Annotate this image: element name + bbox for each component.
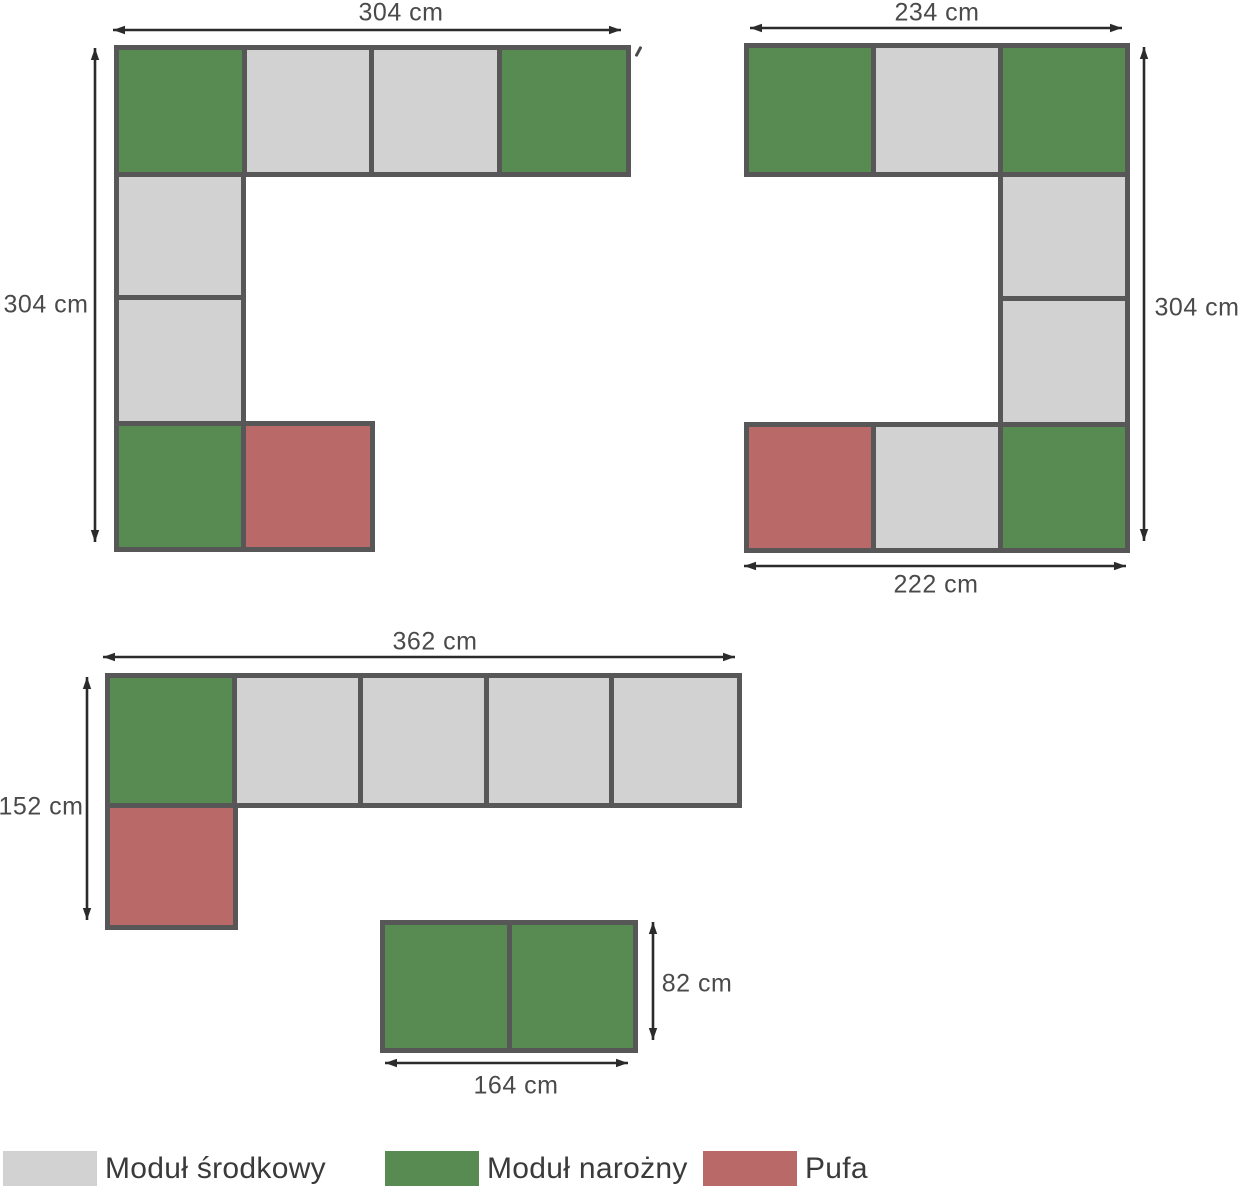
module-corner — [114, 45, 247, 177]
module-corner — [114, 421, 246, 552]
dimension-label-height: 82 cm — [662, 970, 733, 999]
dimension-arrow — [1140, 47, 1148, 541]
legend-item-center-module: Moduł środkowy — [3, 1150, 326, 1187]
module-corner — [998, 43, 1130, 177]
stray-mark — [635, 46, 643, 57]
dimension-label-height: 152 cm — [0, 793, 83, 822]
dimension-label-height: 304 cm — [4, 291, 89, 320]
module-corner — [998, 422, 1130, 553]
dimension-label-width: 362 cm — [393, 628, 478, 657]
dimension-arrow — [744, 562, 1126, 570]
dimension-arrow — [91, 48, 99, 542]
sofa-configuration-canvas: 304 cm304 cm234 cm304 cm222 cm362 cm152 … — [0, 0, 1241, 1200]
module-corner — [380, 920, 512, 1053]
module-corner — [744, 43, 876, 177]
dimension-label-top-width: 234 cm — [895, 0, 980, 28]
module-center — [871, 422, 1003, 553]
module-center — [232, 673, 363, 808]
module-corner — [507, 920, 638, 1053]
center-module-label: Moduł środkowy — [105, 1152, 326, 1186]
module-pufa — [105, 803, 238, 930]
dimension-label-width: 164 cm — [474, 1072, 559, 1101]
dimension-arrow — [385, 1059, 628, 1067]
pufa-label: Pufa — [805, 1152, 868, 1186]
module-corner — [105, 673, 237, 808]
module-center — [484, 673, 614, 808]
module-center — [242, 45, 374, 177]
module-center — [871, 43, 1003, 177]
module-center — [114, 295, 246, 426]
module-pufa — [744, 422, 876, 553]
dimension-label-bottom-width: 222 cm — [894, 571, 979, 600]
center-module-swatch — [3, 1151, 97, 1186]
module-center — [998, 172, 1130, 301]
module-center — [114, 172, 246, 300]
module-center — [358, 673, 489, 808]
dimension-label-width: 304 cm — [359, 0, 444, 28]
module-center — [998, 296, 1130, 427]
module-corner — [497, 45, 631, 177]
dimension-arrow — [83, 677, 91, 920]
corner-module-swatch — [385, 1151, 479, 1186]
module-center — [609, 673, 742, 808]
pufa-swatch — [703, 1151, 797, 1186]
legend-item-corner-module: Moduł narożny — [385, 1150, 688, 1187]
dimension-label-height: 304 cm — [1155, 294, 1240, 323]
module-center — [369, 45, 502, 177]
dimension-arrow — [649, 922, 657, 1040]
module-pufa — [241, 421, 375, 552]
legend-item-pufa: Pufa — [703, 1150, 868, 1187]
corner-module-label: Moduł narożny — [487, 1152, 688, 1186]
